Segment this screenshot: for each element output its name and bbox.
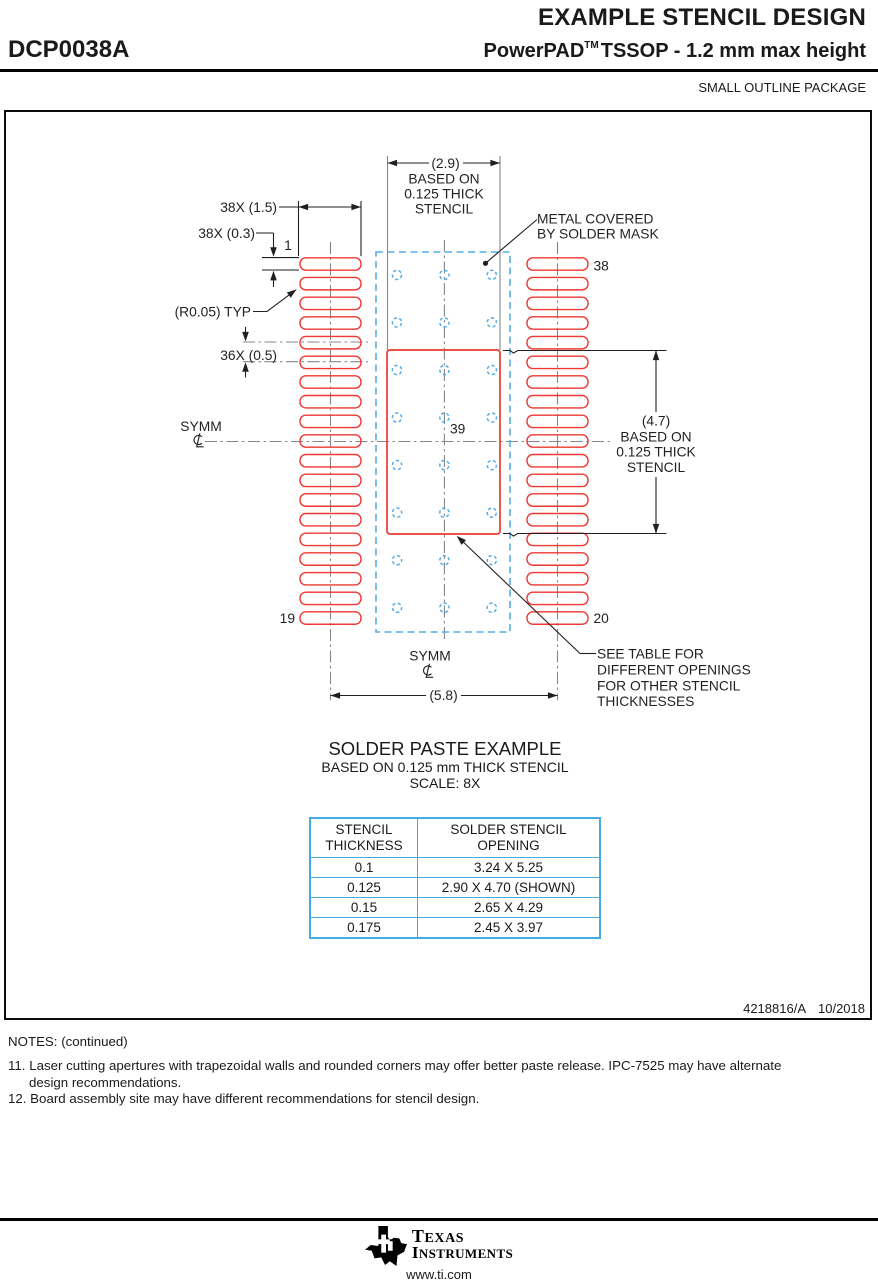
notes-title: NOTES: (continued) bbox=[8, 1034, 128, 1049]
header-rule bbox=[0, 69, 878, 72]
brand-texas: TEXAS bbox=[412, 1229, 513, 1246]
note-11-line-2: design recommendations. bbox=[29, 1075, 181, 1090]
doc-date: 10/2018 bbox=[818, 1001, 865, 1016]
table-row: 0.175 2.45 X 3.97 bbox=[310, 918, 600, 939]
package-subtitle: SMALL OUTLINE PACKAGE bbox=[698, 80, 866, 95]
part-number: DCP0038A bbox=[8, 36, 129, 64]
table-row: 0.1 3.24 X 5.25 bbox=[310, 858, 600, 878]
thickness-value: 0.15 bbox=[310, 898, 418, 918]
thickness-value: 0.175 bbox=[310, 918, 418, 939]
opening-value: 2.90 X 4.70 (SHOWN) bbox=[418, 878, 601, 898]
ti-url: www.ti.com bbox=[406, 1267, 472, 1282]
note-12-line-1: 12. Board assembly site may have differe… bbox=[8, 1091, 479, 1106]
page-title: EXAMPLE STENCIL DESIGN bbox=[538, 4, 866, 32]
footer-rule bbox=[0, 1218, 878, 1221]
document-number: 4218816/A10/2018 bbox=[743, 1001, 865, 1016]
table-row: 0.125 2.90 X 4.70 (SHOWN) bbox=[310, 878, 600, 898]
table-row: 0.15 2.65 X 4.29 bbox=[310, 898, 600, 918]
caption-subtitle-2: SCALE: 8X bbox=[245, 775, 645, 791]
package-heading: PowerPADTMTSSOP - 1.2 mm max height bbox=[484, 40, 866, 63]
doc-number: 4218816/A bbox=[743, 1001, 806, 1016]
col-header-opening: SOLDER STENCIL OPENING bbox=[418, 818, 601, 858]
opening-value: 3.24 X 5.25 bbox=[418, 858, 601, 878]
trademark-symbol: TM bbox=[584, 40, 598, 51]
opening-value: 2.45 X 3.97 bbox=[418, 918, 601, 939]
datasheet-page: EXAMPLE STENCIL DESIGN DCP0038A PowerPAD… bbox=[0, 0, 878, 1288]
note-11-line-1: 11. Laser cutting apertures with trapezo… bbox=[8, 1058, 781, 1073]
table-header-row: STENCIL THICKNESS SOLDER STENCIL OPENING bbox=[310, 818, 600, 858]
package-desc: TSSOP - 1.2 mm max height bbox=[601, 40, 866, 62]
stencil-table: STENCIL THICKNESS SOLDER STENCIL OPENING… bbox=[309, 817, 601, 939]
brand-name: PowerPAD bbox=[484, 40, 585, 62]
caption-subtitle-1: BASED ON 0.125 mm THICK STENCIL bbox=[245, 759, 645, 775]
col-header-thickness: STENCIL THICKNESS bbox=[310, 818, 418, 858]
opening-value: 2.65 X 4.29 bbox=[418, 898, 601, 918]
ti-logo: TEXAS INSTRUMENTS www.ti.com bbox=[0, 1226, 878, 1282]
thickness-value: 0.1 bbox=[310, 858, 418, 878]
thickness-value: 0.125 bbox=[310, 878, 418, 898]
texas-state-icon bbox=[365, 1226, 407, 1266]
brand-instruments: INSTRUMENTS bbox=[412, 1246, 513, 1261]
caption-title: SOLDER PASTE EXAMPLE bbox=[245, 738, 645, 760]
